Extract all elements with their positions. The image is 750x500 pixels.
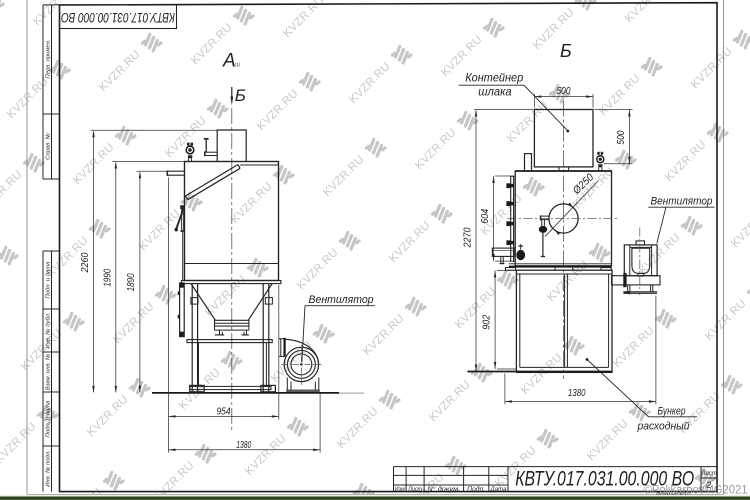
svg-text:1380: 1380 [568, 388, 586, 399]
svg-text:604: 604 [480, 208, 491, 223]
svg-text:1990: 1990 [103, 268, 114, 286]
svg-text:Б: Б [560, 41, 572, 61]
svg-text:Подп.: Подп. [467, 487, 485, 493]
svg-text:Вентилятор: Вентилятор [309, 294, 374, 306]
svg-text:расходный: расходный [637, 421, 690, 433]
svg-text:Изм: Изм [395, 487, 405, 493]
svg-text:Б: Б [235, 86, 246, 105]
svg-text:2260: 2260 [80, 252, 91, 273]
svg-text:Подп. и дата: Подп. и дата [46, 261, 52, 299]
svg-text:N° докум.: N° докум. [427, 487, 460, 493]
svg-text:2270: 2270 [462, 227, 473, 248]
svg-text:902: 902 [481, 314, 492, 329]
svg-text:954: 954 [217, 407, 231, 418]
svg-text:Контейнер: Контейнер [465, 70, 523, 84]
svg-text:1380: 1380 [236, 440, 251, 451]
svg-text:Лист: Лист [407, 487, 422, 493]
svg-text:©PolikarpovMG2021: ©PolikarpovMG2021 [644, 485, 748, 497]
svg-text:500: 500 [557, 86, 571, 97]
svg-text:Инв. № дубл.: Инв. № дубл. [45, 312, 52, 348]
svg-text:Бункер: Бункер [658, 406, 686, 418]
svg-text:1890: 1890 [126, 273, 137, 291]
svg-text:Справ. №: Справ. № [45, 133, 52, 160]
svg-text:(1): (1) [235, 62, 241, 67]
svg-text:Вентилятор: Вентилятор [651, 196, 713, 208]
svg-text:Подп. и дата: Подп. и дата [46, 400, 52, 438]
svg-text:Перв. примен.: Перв. примен. [46, 39, 52, 78]
svg-text:Дата: Дата [489, 487, 507, 493]
svg-text:Взам. инв. №: Взам. инв. № [45, 354, 52, 390]
svg-text:Лист: Лист [700, 471, 716, 477]
svg-text:500: 500 [616, 130, 627, 144]
svg-text:Инв. № подл.: Инв. № подл. [45, 450, 52, 487]
svg-text:шлака: шлака [478, 84, 512, 98]
svg-text:КВТУ.017.031.00.000 ВО: КВТУ.017.031.00.000 ВО [61, 10, 175, 26]
